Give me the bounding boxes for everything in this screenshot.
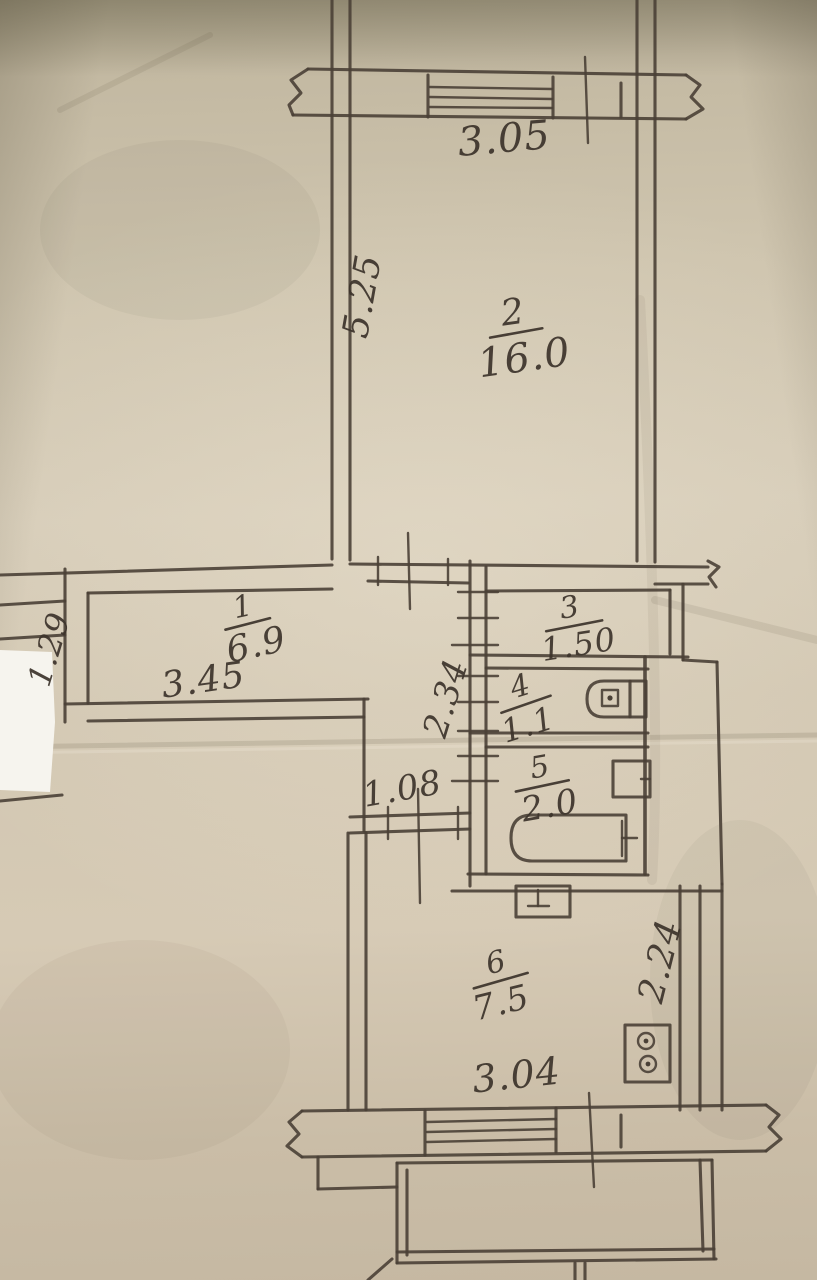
window-icon <box>428 75 553 118</box>
wall-line <box>368 581 468 583</box>
room-number: 2 <box>497 291 527 335</box>
wall-line <box>397 1259 716 1263</box>
wall-line <box>368 1259 392 1280</box>
floor-plan-photo: 3.05 2 16.0 5.25 1 6.9 3.45 1.29 2.34 1.… <box>0 0 817 1280</box>
wall-line <box>0 601 65 605</box>
dimension-tick <box>408 533 410 609</box>
wall-line <box>712 1160 714 1259</box>
dimension-label-room2-left: 5.25 <box>335 251 390 341</box>
wall-line <box>700 1160 703 1251</box>
room-area: 1.50 <box>538 620 618 669</box>
balcony-walls <box>368 1160 716 1280</box>
wall-line <box>0 795 62 801</box>
paper-crease <box>655 600 817 640</box>
wall-line <box>308 69 686 75</box>
dimension-label-top-window: 3.05 <box>456 112 553 166</box>
wall-break-mark <box>289 69 308 115</box>
dimension-label-hall-left: 1.29 <box>20 608 78 691</box>
dimension-label-hall-width: 3.45 <box>159 654 248 706</box>
dimension-label-kitchen-width: 3.04 <box>470 1049 563 1102</box>
paper-crease <box>60 35 210 110</box>
room-number: 4 <box>505 667 535 707</box>
room-number: 6 <box>482 943 510 982</box>
wall-line <box>65 699 368 704</box>
wall-line <box>468 874 648 875</box>
toilet-bowl <box>587 681 646 717</box>
window-pane-line <box>427 1129 556 1132</box>
wall-line <box>88 589 332 593</box>
window-icon <box>425 1108 556 1155</box>
window-pane-line <box>430 87 552 89</box>
wall-break-mark <box>708 561 719 587</box>
wall-break-mark <box>287 1111 302 1157</box>
window-pane-line <box>430 97 552 99</box>
window-pane-line <box>427 1119 556 1122</box>
room-area: 7.5 <box>469 977 534 1030</box>
wall-line <box>350 829 470 833</box>
wall-line <box>318 1187 397 1189</box>
paper-blotch <box>40 140 320 320</box>
dimension-label-kitchen-door: 1.08 <box>360 762 445 815</box>
room-area: 1.1 <box>497 699 560 751</box>
wall-line <box>0 565 332 575</box>
floor-plan-drawing: 3.05 2 16.0 5.25 1 6.9 3.45 1.29 2.34 1.… <box>0 0 817 1280</box>
toilet-drain-dot <box>607 695 612 700</box>
toilet-icon <box>587 681 646 717</box>
wall-line <box>397 1160 712 1163</box>
sanitary-block-walls <box>452 561 722 891</box>
wall-break-mark <box>686 75 703 119</box>
dimension-label-corridor: 2.34 <box>415 654 477 743</box>
room-2-label: 2 16.0 <box>469 285 574 387</box>
room-area: 2.0 <box>517 781 581 830</box>
room-3-label: 3 1.50 <box>533 584 619 669</box>
room-6-label: 6 7.5 <box>459 939 538 1030</box>
paper-crease <box>0 735 817 747</box>
wall-line <box>397 1249 714 1252</box>
room-number: 1 <box>230 588 257 626</box>
wall-line <box>486 590 670 591</box>
window-pane-line <box>430 107 552 108</box>
stove-burner-dot <box>644 1039 649 1044</box>
window-pane-line <box>427 1139 556 1142</box>
wall-line <box>88 717 364 721</box>
room-number: 5 <box>527 749 553 787</box>
room-number: 3 <box>557 589 582 627</box>
stove-burner-dot <box>646 1062 651 1067</box>
paper-blotch <box>0 940 290 1160</box>
wall-line <box>486 668 648 669</box>
wall-line <box>302 1151 766 1157</box>
wall-line <box>683 660 717 662</box>
dimension-tick <box>585 57 588 143</box>
